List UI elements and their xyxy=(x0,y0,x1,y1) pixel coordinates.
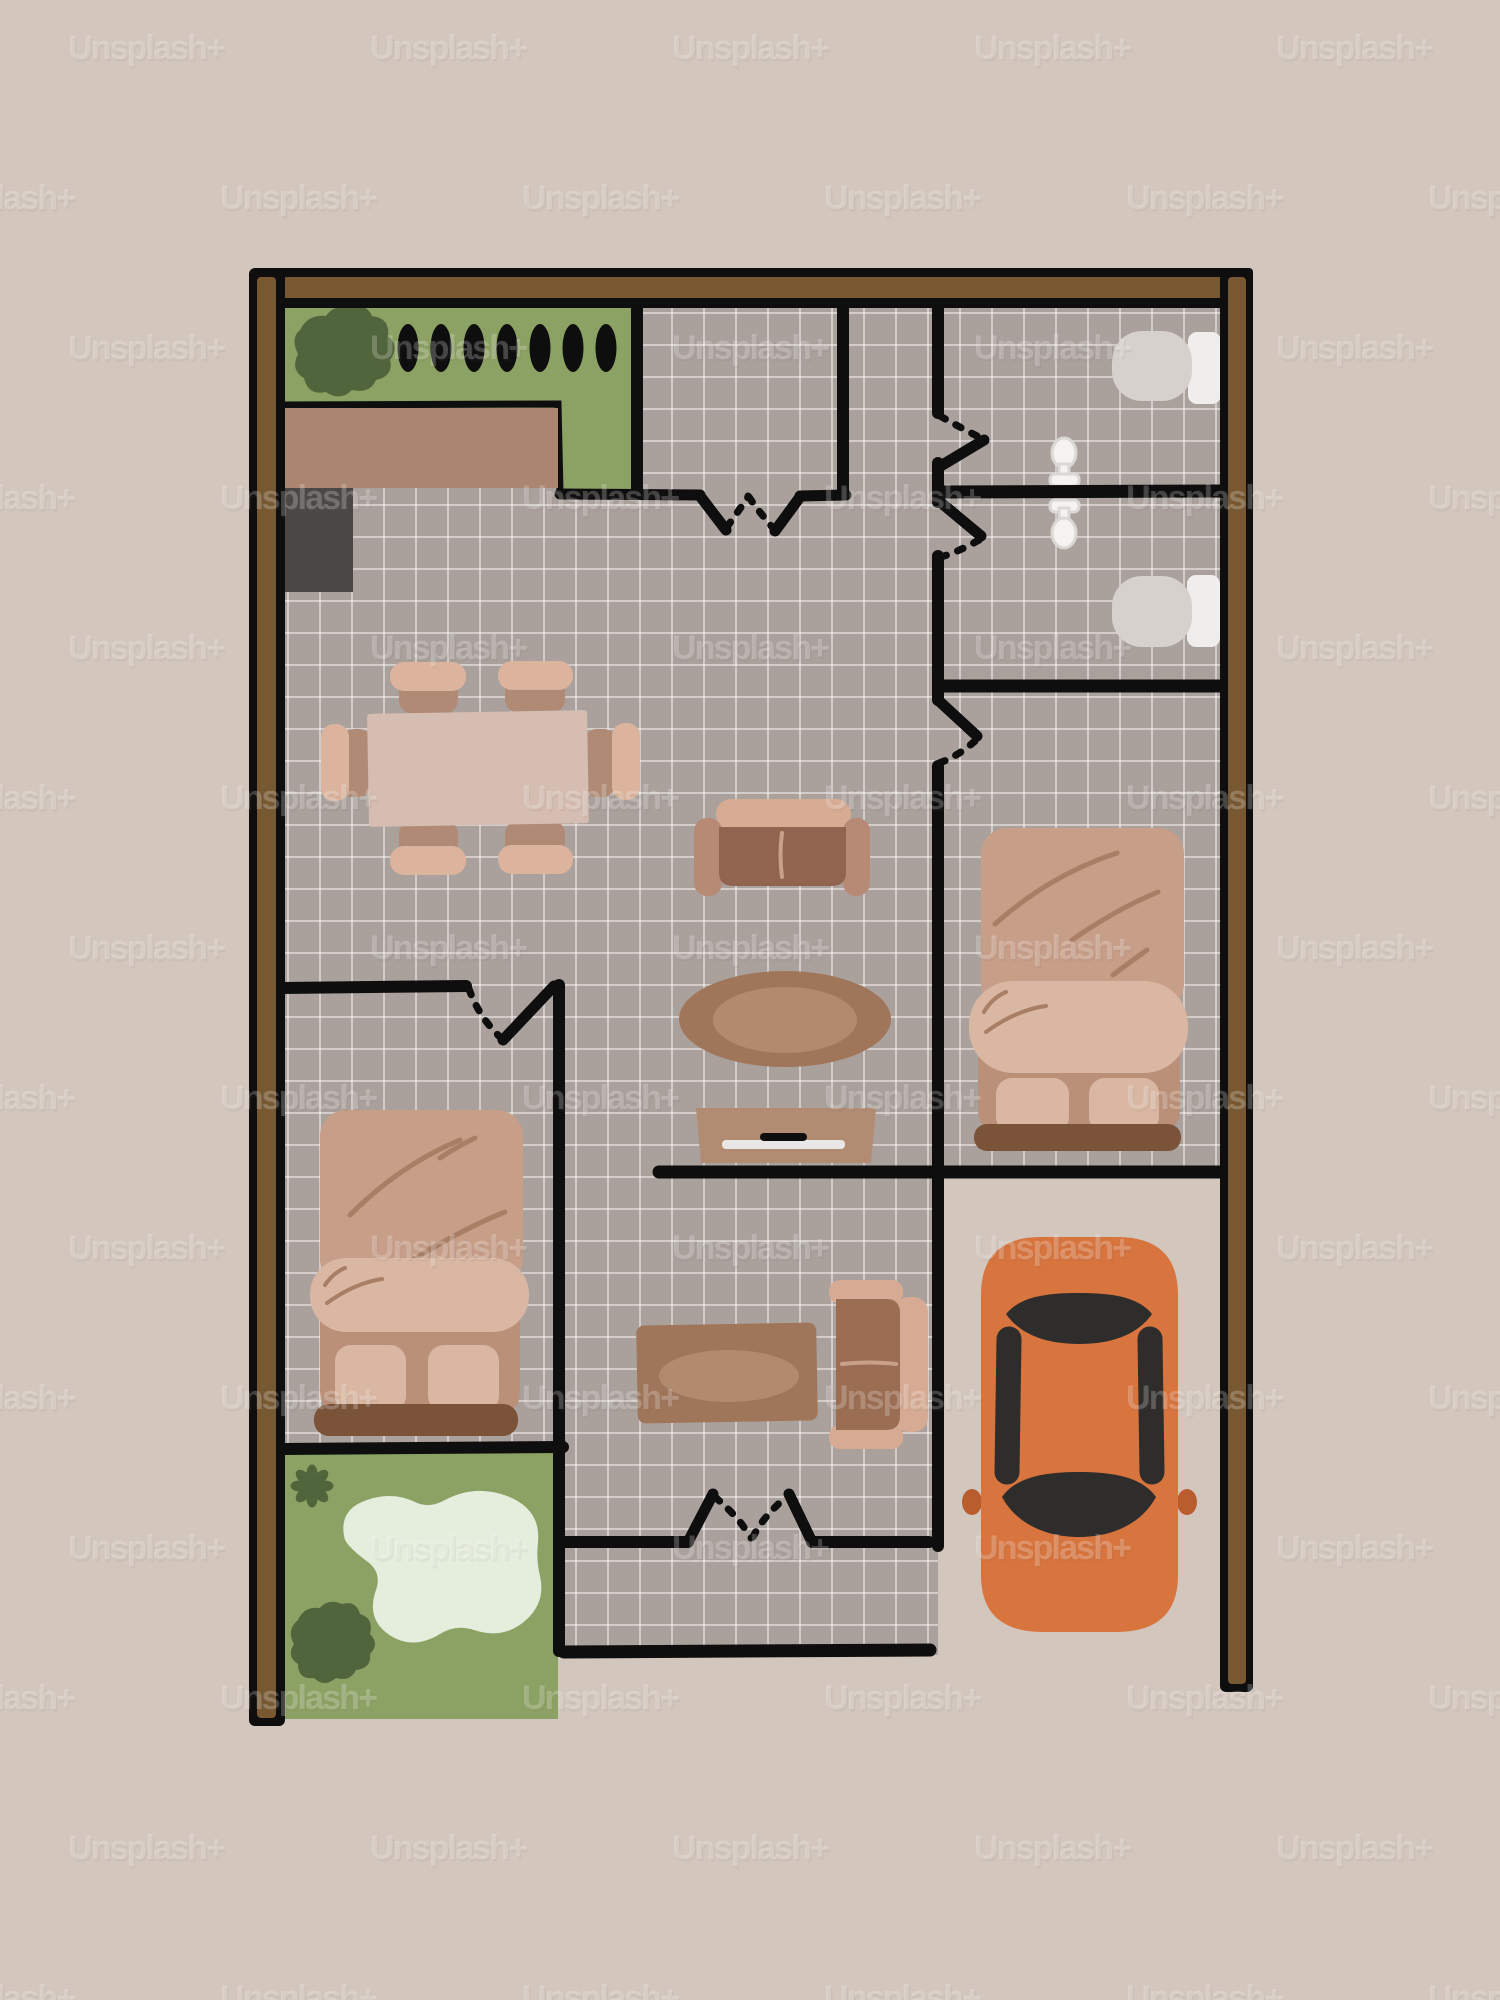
svg-text:Unsplash+: Unsplash+ xyxy=(0,779,76,817)
svg-text:Unsplash+: Unsplash+ xyxy=(824,179,982,217)
svg-text:Unsplash+: Unsplash+ xyxy=(0,1079,76,1117)
svg-text:Unsplash+: Unsplash+ xyxy=(672,929,830,967)
svg-text:Unsplash+: Unsplash+ xyxy=(1276,629,1434,667)
svg-text:Unsplash+: Unsplash+ xyxy=(1276,329,1434,367)
svg-text:Unsplash+: Unsplash+ xyxy=(68,1529,226,1567)
svg-text:Unsplash+: Unsplash+ xyxy=(522,1079,680,1117)
svg-text:Unsplash+: Unsplash+ xyxy=(0,1379,76,1417)
svg-text:Unsplash+: Unsplash+ xyxy=(672,1529,830,1567)
svg-text:Unsplash+: Unsplash+ xyxy=(370,929,528,967)
svg-text:Unsplash+: Unsplash+ xyxy=(370,329,528,367)
svg-text:Unsplash+: Unsplash+ xyxy=(1276,29,1434,67)
svg-text:Unsplash+: Unsplash+ xyxy=(522,1379,680,1417)
svg-text:Unsplash+: Unsplash+ xyxy=(672,29,830,67)
svg-text:Unsplash+: Unsplash+ xyxy=(1428,179,1500,217)
svg-text:Unsplash+: Unsplash+ xyxy=(220,1079,378,1117)
svg-text:Unsplash+: Unsplash+ xyxy=(974,629,1132,667)
svg-text:Unsplash+: Unsplash+ xyxy=(522,1679,680,1717)
svg-text:Unsplash+: Unsplash+ xyxy=(974,1829,1132,1867)
svg-text:Unsplash+: Unsplash+ xyxy=(824,779,982,817)
svg-text:Unsplash+: Unsplash+ xyxy=(1428,1079,1500,1117)
svg-text:Unsplash+: Unsplash+ xyxy=(672,1829,830,1867)
svg-text:Unsplash+: Unsplash+ xyxy=(974,929,1132,967)
svg-text:Unsplash+: Unsplash+ xyxy=(1126,479,1284,517)
svg-text:Unsplash+: Unsplash+ xyxy=(974,1529,1132,1567)
svg-text:Unsplash+: Unsplash+ xyxy=(0,1979,76,2000)
svg-text:Unsplash+: Unsplash+ xyxy=(522,179,680,217)
svg-text:Unsplash+: Unsplash+ xyxy=(1428,1379,1500,1417)
svg-text:Unsplash+: Unsplash+ xyxy=(824,1979,982,2000)
svg-text:Unsplash+: Unsplash+ xyxy=(1126,779,1284,817)
svg-text:Unsplash+: Unsplash+ xyxy=(370,1829,528,1867)
svg-text:Unsplash+: Unsplash+ xyxy=(370,629,528,667)
svg-text:Unsplash+: Unsplash+ xyxy=(68,929,226,967)
svg-text:Unsplash+: Unsplash+ xyxy=(824,1079,982,1117)
svg-text:Unsplash+: Unsplash+ xyxy=(522,1979,680,2000)
svg-text:Unsplash+: Unsplash+ xyxy=(1126,1979,1284,2000)
svg-text:Unsplash+: Unsplash+ xyxy=(1428,1979,1500,2000)
svg-text:Unsplash+: Unsplash+ xyxy=(68,329,226,367)
svg-text:Unsplash+: Unsplash+ xyxy=(370,29,528,67)
svg-text:Unsplash+: Unsplash+ xyxy=(68,629,226,667)
svg-text:Unsplash+: Unsplash+ xyxy=(220,1979,378,2000)
svg-text:Unsplash+: Unsplash+ xyxy=(1428,779,1500,817)
svg-text:Unsplash+: Unsplash+ xyxy=(68,1829,226,1867)
svg-text:Unsplash+: Unsplash+ xyxy=(370,1229,528,1267)
svg-text:Unsplash+: Unsplash+ xyxy=(1428,1679,1500,1717)
svg-text:Unsplash+: Unsplash+ xyxy=(522,779,680,817)
svg-text:Unsplash+: Unsplash+ xyxy=(220,779,378,817)
svg-text:Unsplash+: Unsplash+ xyxy=(974,29,1132,67)
svg-text:Unsplash+: Unsplash+ xyxy=(220,179,378,217)
svg-text:Unsplash+: Unsplash+ xyxy=(220,1379,378,1417)
svg-text:Unsplash+: Unsplash+ xyxy=(220,479,378,517)
svg-text:Unsplash+: Unsplash+ xyxy=(1126,1079,1284,1117)
svg-text:Unsplash+: Unsplash+ xyxy=(220,1679,378,1717)
svg-text:Unsplash+: Unsplash+ xyxy=(1276,1829,1434,1867)
svg-text:Unsplash+: Unsplash+ xyxy=(974,329,1132,367)
svg-text:Unsplash+: Unsplash+ xyxy=(0,479,76,517)
svg-text:Unsplash+: Unsplash+ xyxy=(522,479,680,517)
svg-text:Unsplash+: Unsplash+ xyxy=(672,629,830,667)
svg-text:Unsplash+: Unsplash+ xyxy=(1126,1679,1284,1717)
svg-text:Unsplash+: Unsplash+ xyxy=(68,29,226,67)
svg-text:Unsplash+: Unsplash+ xyxy=(672,329,830,367)
svg-text:Unsplash+: Unsplash+ xyxy=(824,479,982,517)
svg-text:Unsplash+: Unsplash+ xyxy=(1428,479,1500,517)
svg-text:Unsplash+: Unsplash+ xyxy=(1276,1529,1434,1567)
svg-text:Unsplash+: Unsplash+ xyxy=(1276,929,1434,967)
svg-text:Unsplash+: Unsplash+ xyxy=(824,1379,982,1417)
svg-text:Unsplash+: Unsplash+ xyxy=(0,179,76,217)
svg-text:Unsplash+: Unsplash+ xyxy=(370,1529,528,1567)
svg-text:Unsplash+: Unsplash+ xyxy=(68,1229,226,1267)
svg-text:Unsplash+: Unsplash+ xyxy=(1126,179,1284,217)
svg-text:Unsplash+: Unsplash+ xyxy=(1126,1379,1284,1417)
svg-text:Unsplash+: Unsplash+ xyxy=(672,1229,830,1267)
svg-text:Unsplash+: Unsplash+ xyxy=(1276,1229,1434,1267)
svg-text:Unsplash+: Unsplash+ xyxy=(0,1679,76,1717)
svg-text:Unsplash+: Unsplash+ xyxy=(974,1229,1132,1267)
svg-text:Unsplash+: Unsplash+ xyxy=(824,1679,982,1717)
